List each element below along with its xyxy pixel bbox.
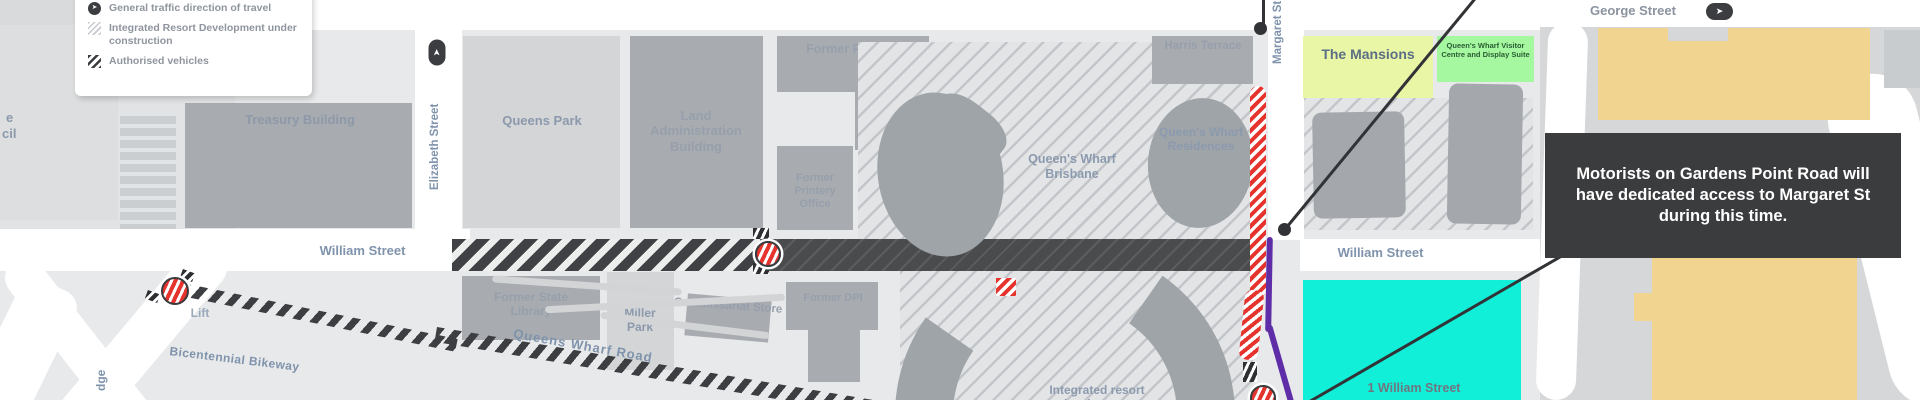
queens-park-label: Queens Park [500,113,584,128]
bikeway-authorised-band [181,283,458,352]
former-dpi-label: Former DPI [798,292,868,305]
elizabeth-street-label: Elizabeth Street [429,72,446,222]
mansions-building-silhouette-2 [1447,83,1523,224]
leader-dot-1 [1254,22,1267,35]
road-closure-strip [1250,86,1266,298]
road-closure-patch [996,278,1016,296]
legend-label: Authorised vehicles [109,55,209,69]
treasury-building-label: Treasury Building [240,112,360,127]
queens-wharf-precinct-map: e cil Treasury Building William Street L… [0,0,1920,400]
council-label-fragment-2: cil [2,126,16,141]
no-entry-icon-gardens-point [1250,385,1276,400]
one-william-street-label: 1 William Street [1348,381,1480,396]
construction-hatch-icon [88,22,101,35]
council-label-fragment-1: e [6,110,13,125]
former-dpi-block [786,282,878,330]
mansions-building-silhouette-1 [1312,111,1406,219]
callout-box: Motorists on Gardens Point Road will hav… [1545,133,1901,258]
former-dpi-stem [808,330,860,382]
qut-building-stub [1634,293,1674,321]
callout-text: Motorists on Gardens Point Road will hav… [1563,164,1883,227]
william-street-east-label: William Street [1318,245,1443,260]
legend-row-authorised: Authorised vehicles [88,55,302,69]
authorised-hatch-icon [88,55,101,68]
no-entry-icon-william [755,241,781,267]
visitor-centre-label: Queen's Wharf Visitor Centre and Display… [1441,42,1530,60]
margaret-street-label: Margaret St [1272,0,1289,75]
leader-dot-2 [1278,223,1291,236]
qut-building-north [1598,28,1870,120]
former-printery-office-label: Former Printery Office [781,172,849,211]
traffic-direction-icon-george [1706,3,1733,20]
legend-row-construction: Integrated Resort Development under cons… [88,22,302,49]
legend-box: General traffic direction of travel Inte… [75,0,312,96]
access-route-segment-1 [1265,237,1273,332]
land-administration-label: Land Administration Building [636,108,756,154]
qut-building-notch [1668,28,1728,41]
right-edge-block [1884,30,1920,88]
hatch-stub-road-top [753,228,769,239]
queens-wharf-residences-label: Queen's Wharf Residences [1153,125,1249,153]
no-entry-icon-bikeway [161,277,189,305]
traffic-direction-icon-elizabeth [429,40,446,66]
queens-wharf-brisbane-label: Queen's Wharf Brisbane [1012,152,1132,182]
bicentennial-bikeway-label: Bicentennial Bikeway [142,341,327,378]
queens-park-block [463,36,620,228]
integrated-resort-label: Integrated resort development [1022,383,1172,400]
lift-label: Lift [178,306,222,320]
the-mansions-label: The Mansions [1318,46,1418,63]
bridge-label-fragment: dge [94,358,110,400]
william-street-west-label: William Street [300,243,425,258]
legend-row-traffic-direction: General traffic direction of travel [88,2,302,16]
harris-terrace-label: Harris Terrace [1158,40,1248,54]
traffic-direction-icon [88,2,101,15]
legend-label: General traffic direction of travel [109,2,271,16]
qut-building-south [1652,240,1857,400]
legend-label: Integrated Resort Development under cons… [109,22,302,49]
george-street-label: George Street [1590,3,1702,18]
authorised-vehicles-road-band [452,239,760,271]
hatch-stub-bottom [1243,362,1257,382]
